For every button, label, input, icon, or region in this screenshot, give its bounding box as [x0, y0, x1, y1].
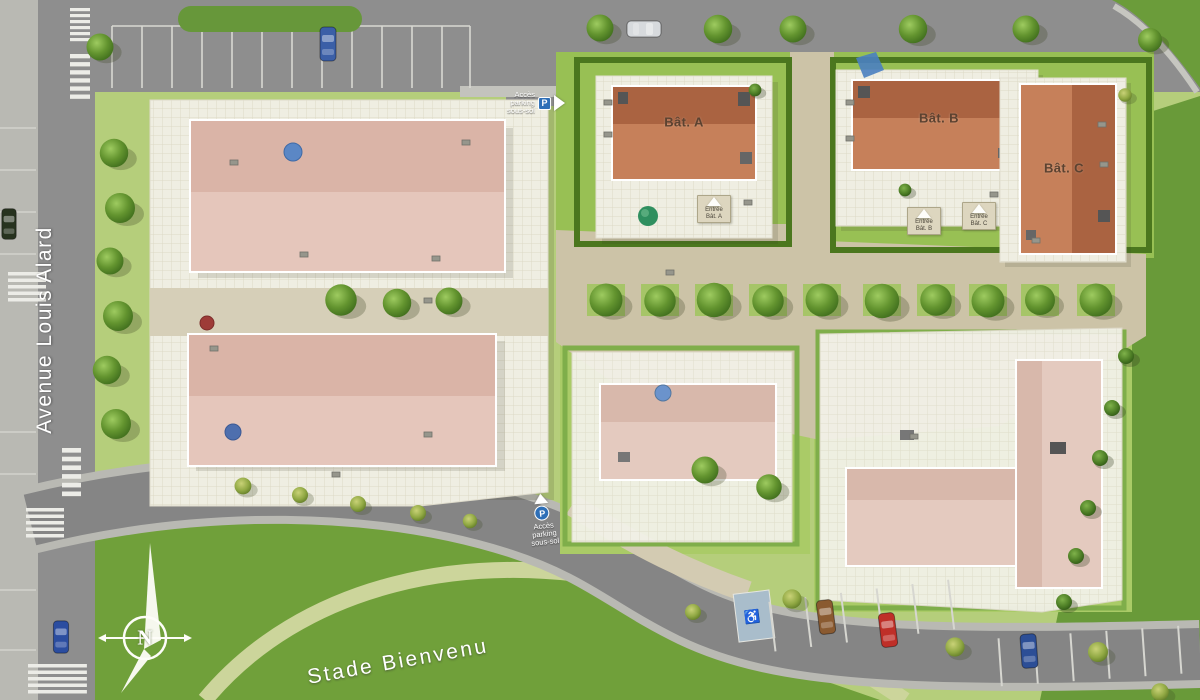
bat-c-label: Bât. C	[1044, 161, 1084, 176]
entrance-arrow-icon	[707, 197, 721, 206]
future-building-1[interactable]	[572, 352, 792, 542]
parking-icon: P	[538, 97, 551, 110]
bat-a-label: Bât. A	[664, 115, 703, 130]
car-dark	[2, 209, 16, 240]
parking-icon: P	[534, 505, 550, 521]
parking-access-bottom: P Accès parking sous-sol	[526, 492, 559, 548]
car-blue	[320, 27, 336, 61]
entrance-label: Bât. C	[971, 221, 988, 228]
car-red	[878, 612, 898, 648]
wheelchair-icon: ♿	[743, 608, 761, 626]
future-building-2[interactable]	[820, 328, 1122, 612]
parking-access-top: Accès parking sous-sol P	[507, 91, 565, 115]
entrance-label: Bât. B	[916, 226, 932, 233]
site-plan-canvas	[0, 0, 1200, 700]
car-silver	[627, 21, 661, 37]
umbrella-blue	[284, 143, 302, 161]
umbrella-red	[200, 316, 214, 330]
canopy-green	[638, 206, 658, 226]
bat-b-label: Bât. B	[919, 111, 959, 126]
entrance-marker-bat-b: Entrée Bât. B	[907, 207, 941, 235]
compass-north-label: N	[137, 626, 152, 651]
car-blue	[53, 621, 68, 653]
parking-access-text: sous-sol	[507, 107, 535, 115]
umbrella-blue	[655, 385, 671, 401]
arrow-right-icon	[554, 95, 565, 111]
entrance-marker-bat-a: Entrée Bât. A	[697, 195, 731, 223]
avenue-street-label: Avenue Louis Alard	[33, 226, 57, 434]
entrance-arrow-icon	[972, 204, 986, 213]
site-plan: Avenue Louis Alard Stade Bienvenu Bât. A…	[0, 0, 1200, 700]
building-bat-a[interactable]	[596, 76, 778, 244]
entrance-arrow-icon	[917, 209, 931, 218]
entrance-marker-bat-c: Entrée Bât. C	[962, 202, 996, 230]
car-brown	[816, 599, 836, 635]
arrow-up-icon	[533, 493, 548, 504]
umbrella-blue	[225, 424, 241, 440]
entrance-label: Bât. A	[706, 214, 722, 221]
car-dark-blue	[1020, 633, 1038, 668]
